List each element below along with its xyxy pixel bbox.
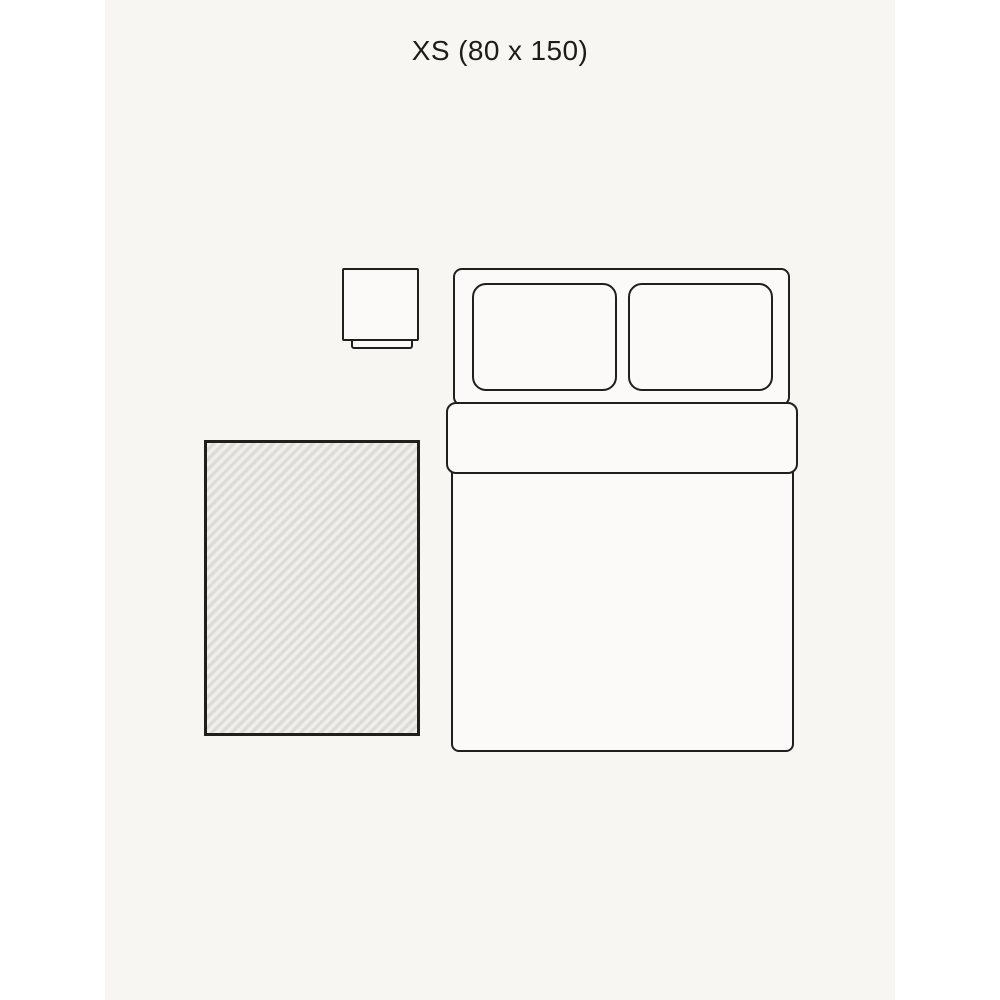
pillow-left xyxy=(472,283,617,391)
size-guide-diagram: XS (80 x 150) xyxy=(0,0,1000,1000)
rug xyxy=(204,440,420,736)
pillow-right xyxy=(628,283,773,391)
bedside-table xyxy=(342,268,419,341)
size-title: XS (80 x 150) xyxy=(105,36,895,67)
bed-duvet-fold xyxy=(446,402,798,474)
